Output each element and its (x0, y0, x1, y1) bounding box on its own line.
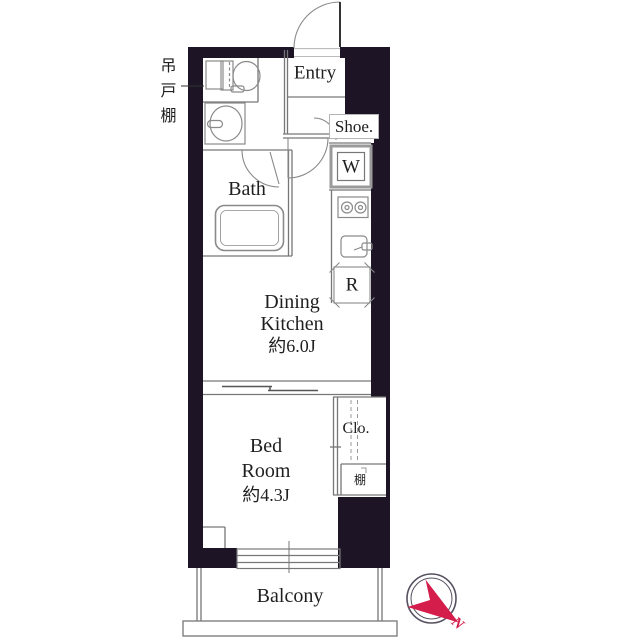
toilet (206, 61, 260, 92)
closet-label: Clo. (342, 421, 369, 437)
refrigerator-label: R (346, 276, 359, 295)
floor-plan: 吊戸棚 Entry Shoe. W R Bath Dining Kitchen … (0, 0, 640, 640)
bed-room-label-line2: Room (242, 461, 291, 481)
hanging-cupboard-label: 吊戸棚 (159, 54, 178, 129)
compass-icon (407, 574, 459, 623)
shelf-label: 棚 (354, 474, 366, 486)
bed-room-label-line1: Bed (250, 436, 282, 456)
dining-kitchen-label-line2: Kitchen (260, 314, 323, 334)
stove (338, 197, 368, 218)
door-swings (242, 2, 340, 187)
hall-door-arc (288, 138, 328, 178)
washing-machine-label: W (342, 158, 360, 177)
dining-kitchen-label-line1: Dining (264, 292, 320, 312)
shoe-cabinet-label: Shoe. (329, 114, 379, 139)
entry-door-arc (294, 2, 340, 48)
sliding-door (222, 387, 318, 391)
balcony-label: Balcony (257, 586, 324, 606)
bed-room-size: 約4.3J (242, 486, 290, 504)
entry-label: Entry (294, 64, 336, 83)
dining-kitchen-size: 約6.0J (268, 337, 316, 355)
kitchen-sink (341, 236, 372, 257)
window (237, 541, 340, 573)
washbasin (205, 103, 245, 144)
bath-label: Bath (228, 179, 266, 199)
bathtub (216, 206, 284, 251)
